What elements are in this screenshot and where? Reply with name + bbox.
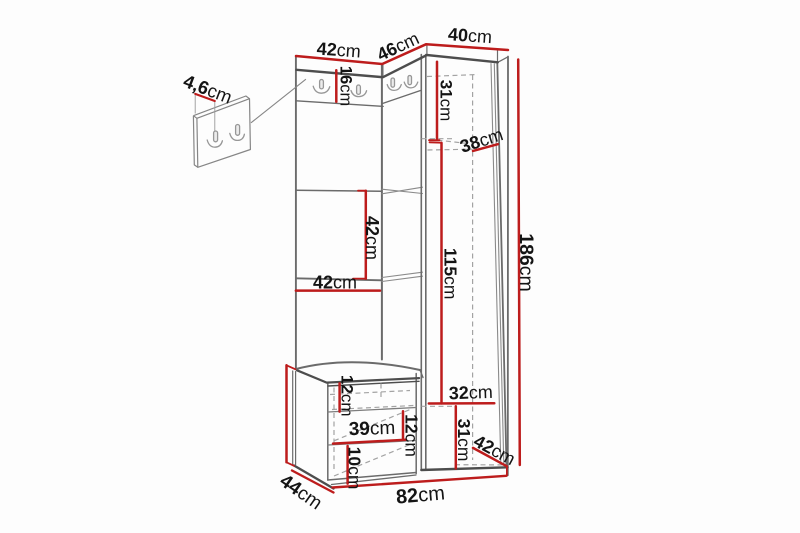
svg-text:12cm: 12cm [402,414,422,457]
svg-text:10cm: 10cm [345,447,365,490]
svg-text:186cm: 186cm [515,233,537,292]
svg-text:82cm: 82cm [395,482,446,508]
svg-text:42cm: 42cm [362,216,382,260]
svg-text:16cm: 16cm [337,66,355,106]
svg-text:31cm: 31cm [437,80,456,122]
svg-text:12cm: 12cm [338,375,357,417]
svg-text:40cm: 40cm [447,24,492,47]
svg-text:42cm: 42cm [316,38,361,61]
svg-text:42cm: 42cm [313,272,357,292]
svg-text:39cm: 39cm [348,417,395,440]
svg-text:115cm: 115cm [441,248,461,300]
svg-text:32cm: 32cm [448,382,493,404]
svg-text:31cm: 31cm [454,419,474,462]
